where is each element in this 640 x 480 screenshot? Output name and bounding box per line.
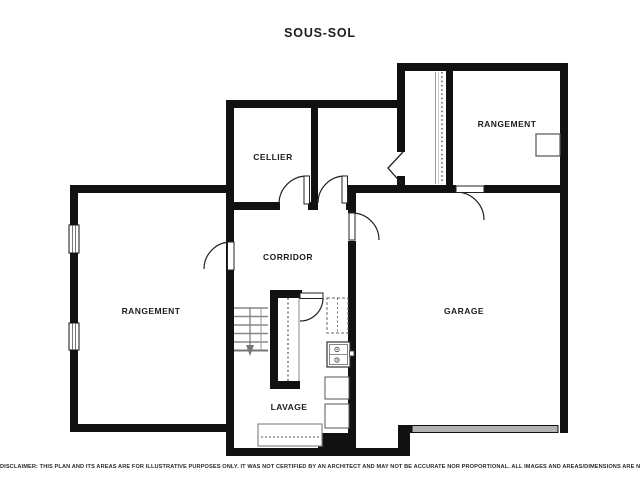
room-label-cellier: CELLIER <box>253 152 293 162</box>
appliance-dryer <box>325 404 349 428</box>
wall-garage-top-east <box>484 185 568 193</box>
wall-stair-channel-right <box>446 71 453 193</box>
wall-stair-channel-left <box>397 63 405 152</box>
garage-door <box>412 426 558 433</box>
door-arc-lavage <box>300 298 323 321</box>
wall-garage-top-west <box>348 185 456 193</box>
cabinet-dashed <box>327 298 348 333</box>
window-rangement-left-1 <box>69 225 79 253</box>
door-arc-cellier <box>279 176 307 204</box>
room-label-rangement-left: RANGEMENT <box>122 306 181 316</box>
window-rangement-left-2 <box>69 323 79 350</box>
wall-garage-step <box>398 432 410 452</box>
door-arc-small-room <box>318 176 345 203</box>
door-arc-rangement-top-right <box>456 192 484 220</box>
room-label-rangement-top-right: RANGEMENT <box>478 119 537 129</box>
wall-lavage-garage-corner <box>318 433 356 456</box>
door-leaf-rangement-left <box>228 242 235 270</box>
door-leaf-lavage <box>300 293 323 299</box>
laundry-tub <box>327 342 354 367</box>
floorplan-drawing <box>0 0 640 480</box>
wall-stair-partition <box>270 295 278 388</box>
counter-dashed <box>258 424 322 446</box>
wall-rangement-left-bottom <box>70 424 234 432</box>
wall-cellier-divider <box>311 107 318 202</box>
stair-channel-top-right <box>436 72 443 184</box>
stairs-main <box>234 308 268 356</box>
room-label-garage: GARAGE <box>444 306 484 316</box>
door-leaf-small-room <box>342 176 348 203</box>
wall-rangement-left-west <box>70 185 78 432</box>
room-label-corridor: CORRIDOR <box>263 252 313 262</box>
disclaimer-text: DISCLAIMER: THIS PLAN AND ITS AREAS ARE … <box>0 464 640 470</box>
appliance-washer <box>325 377 349 399</box>
wall-right-outer <box>560 63 568 433</box>
stairs-under-channel <box>288 298 299 381</box>
doors <box>204 152 484 321</box>
wall-west-spine <box>226 100 234 456</box>
wall-cellier-bottom-a <box>226 202 280 210</box>
door-arc-garage <box>352 213 379 240</box>
wall-cellier-top <box>228 100 405 108</box>
tub-faucet <box>350 351 355 356</box>
wall-rangement-left-top <box>72 185 234 193</box>
door-leaf-rangement-top-right <box>456 186 484 193</box>
room-label-lavage: LAVAGE <box>271 402 308 412</box>
floorplan-page: SOUS-SOL <box>0 0 640 480</box>
door-leaf-cellier <box>304 176 310 204</box>
wall-garage-door-jamb <box>398 425 412 433</box>
wall-top-right-top <box>397 63 568 71</box>
wall-stair-cap-bottom <box>270 381 300 389</box>
rangement-post-square <box>536 134 560 156</box>
door-leaf-garage <box>349 213 355 240</box>
